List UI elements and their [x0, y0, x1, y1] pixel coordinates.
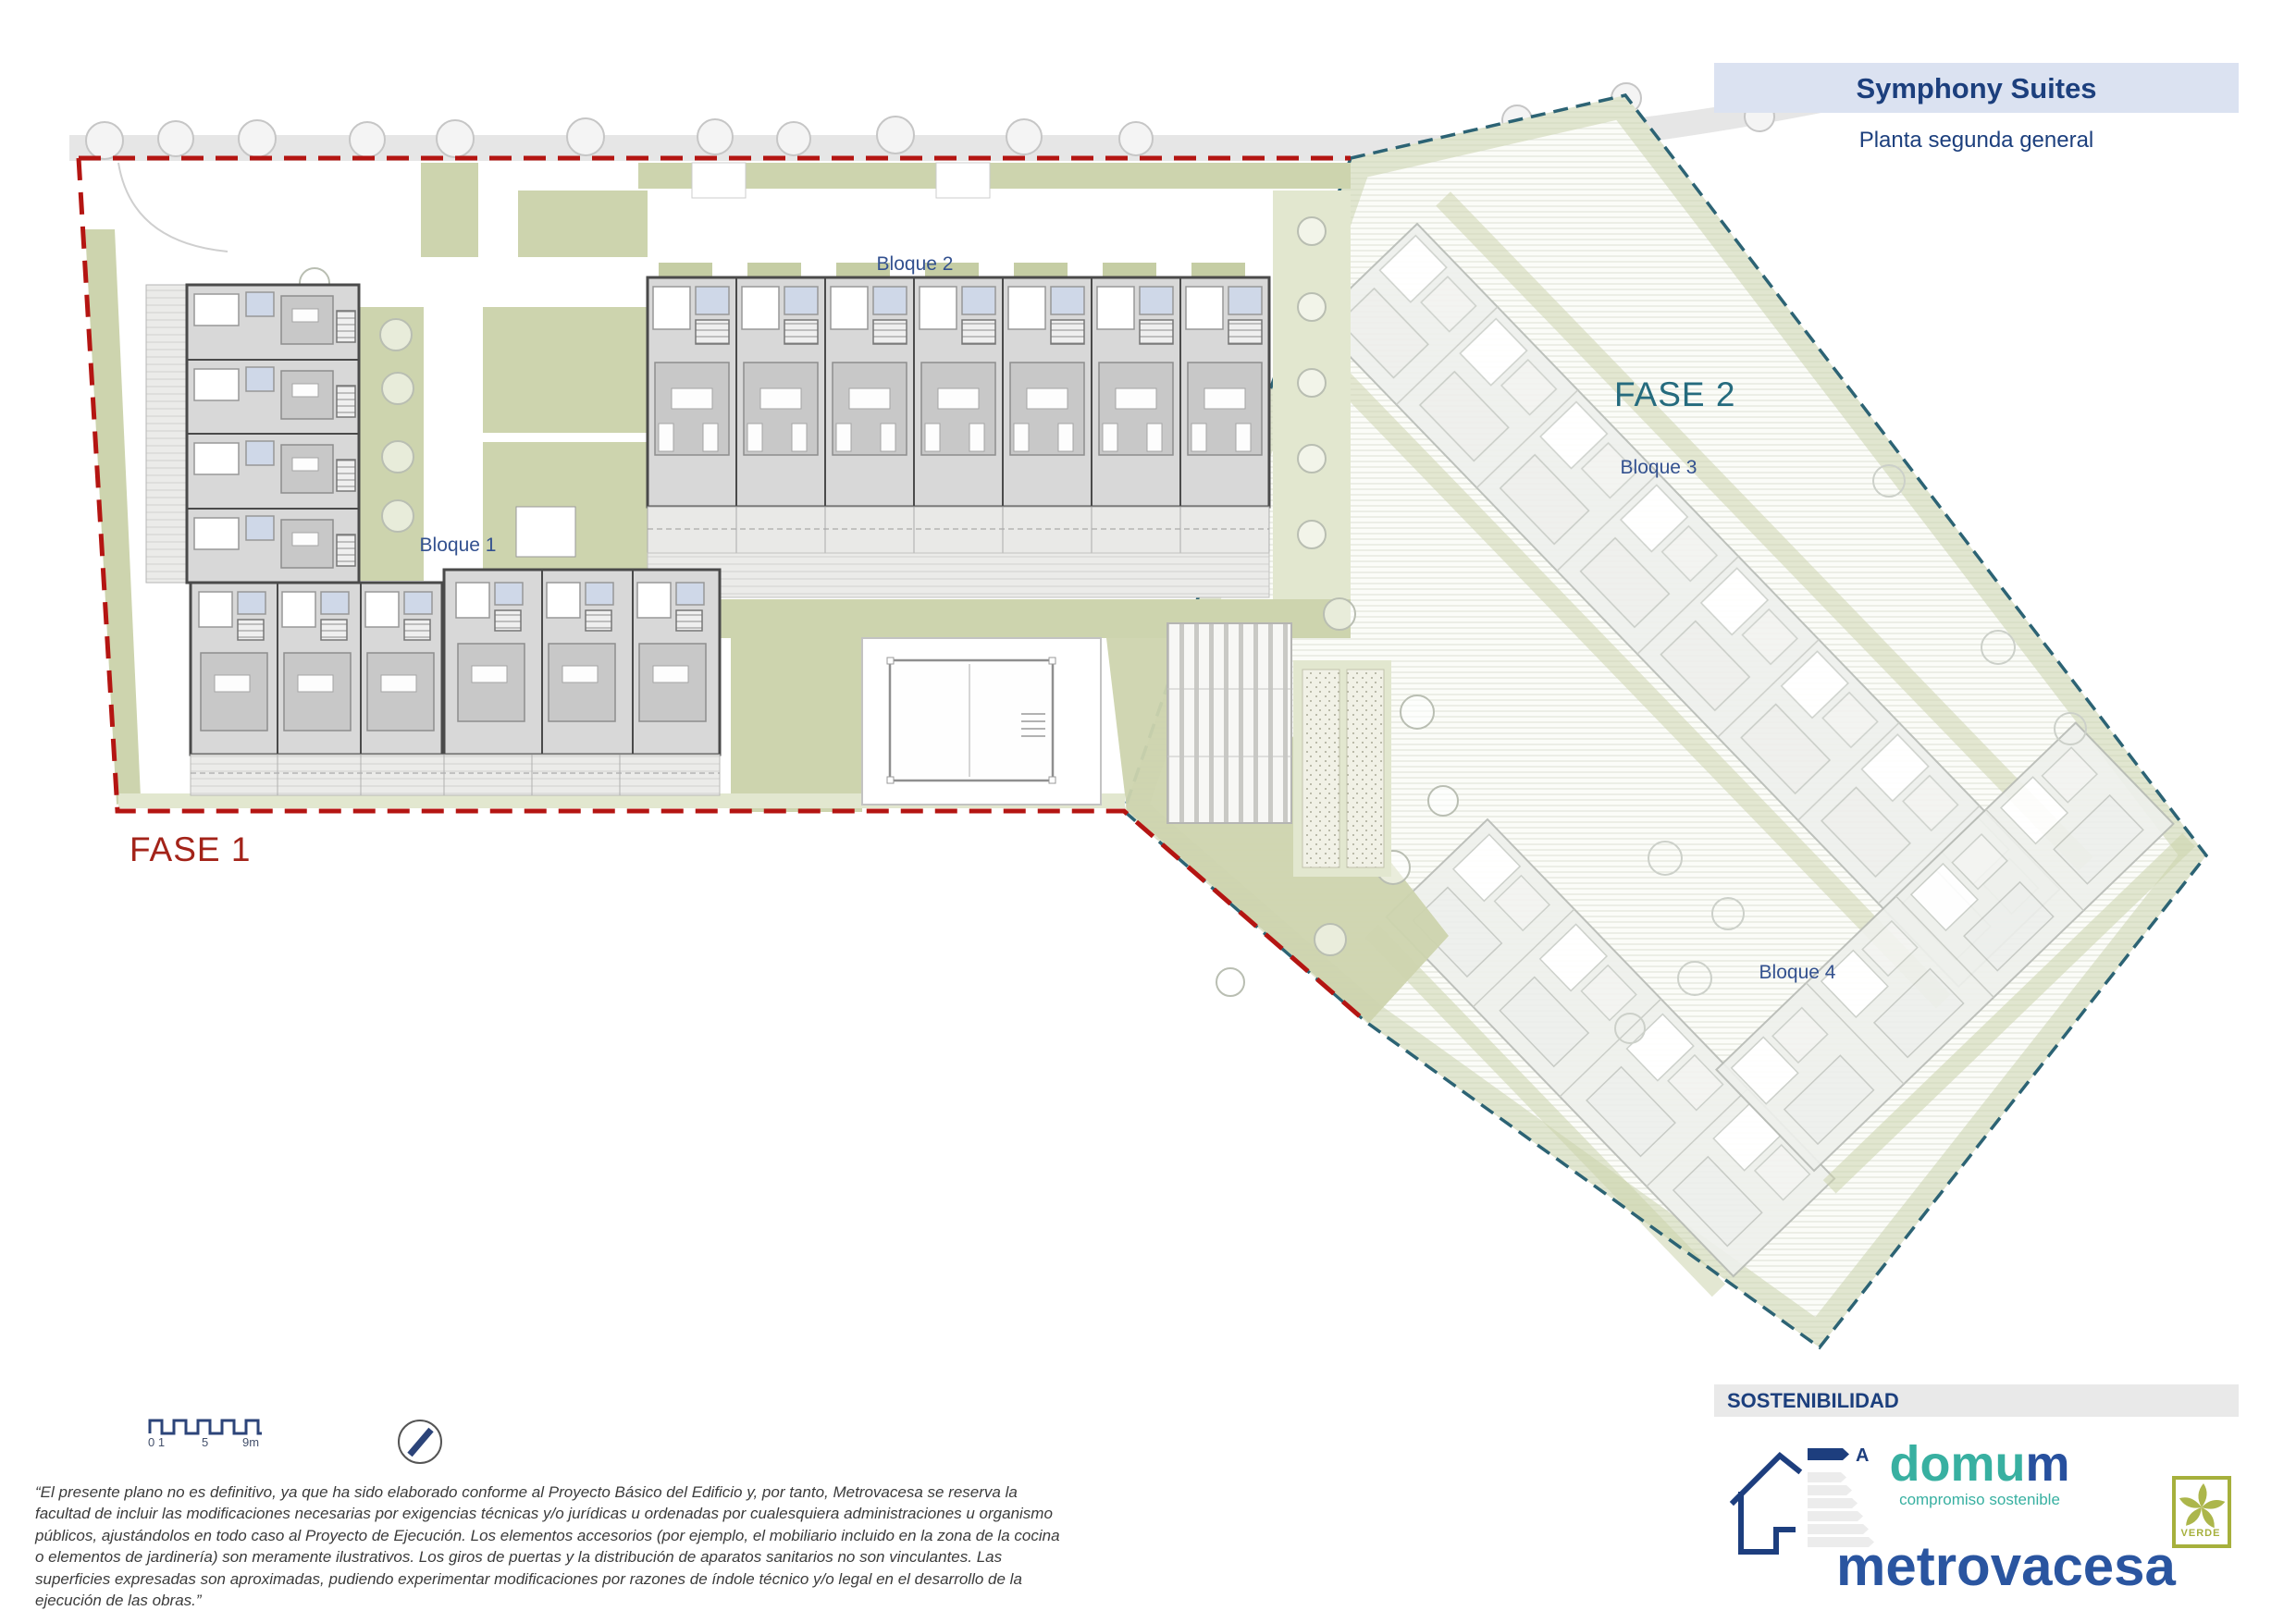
north-arrow-icon	[395, 1417, 445, 1467]
domum-tagline: compromiso sostenible	[1864, 1491, 2095, 1509]
gravel-beds	[1293, 660, 1391, 877]
domum-logo-accent: m	[2025, 1436, 2069, 1492]
swimming-pool	[890, 660, 1053, 781]
pool-area	[862, 638, 1101, 805]
verde-badge-label: VERDE	[2174, 1528, 2228, 1539]
scale-tick-start: 0 1	[148, 1435, 165, 1449]
project-title: Symphony Suites	[1714, 72, 2239, 105]
plan-sheet: Symphony Suites Planta segunda general F…	[0, 0, 2296, 1623]
bloque2-building	[648, 263, 1269, 597]
bloque4-label: Bloque 4	[1723, 962, 1871, 984]
legal-disclaimer: “El presente plano no es definitivo, ya …	[35, 1482, 1069, 1612]
domum-logo-primary: domu	[1890, 1436, 2026, 1492]
fase1-label: FASE 1	[130, 830, 315, 869]
sustainability-header: SOSTENIBILIDAD	[1727, 1389, 2097, 1413]
pergola-deck	[1167, 623, 1291, 823]
plan-subtitle: Planta segunda general	[1714, 128, 2239, 154]
scale-tick-mid: 5	[202, 1435, 208, 1449]
bloque2-label: Bloque 2	[841, 253, 989, 276]
road	[69, 68, 1954, 161]
fase2-label: FASE 2	[1614, 375, 1799, 414]
bloque1-west-building	[146, 285, 359, 583]
domum-logo: domum	[1864, 1439, 2095, 1489]
bloque1-label: Bloque 1	[384, 535, 532, 557]
bloque1-south-buildings	[191, 570, 720, 795]
bloque3-label: Bloque 3	[1585, 457, 1733, 479]
site-plan	[0, 0, 2296, 1623]
scale-tick-end: 9m	[242, 1435, 259, 1449]
